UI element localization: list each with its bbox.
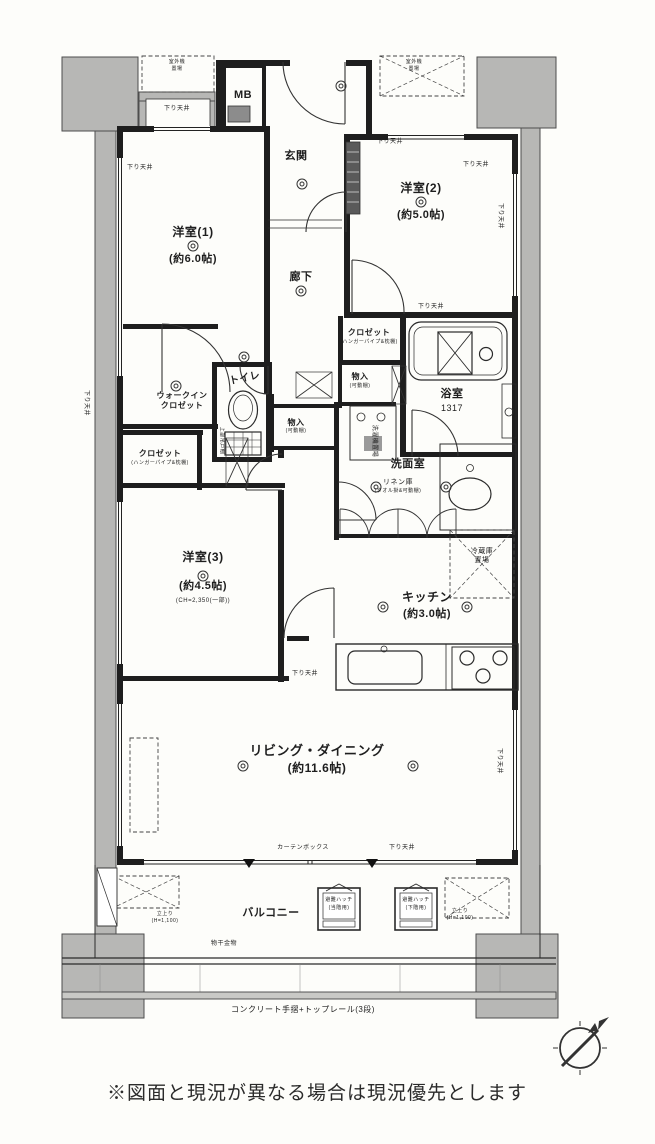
linen-closet-sub: (タオル掛&可動棚) — [375, 489, 422, 494]
outdoor-unit-left-line1: 室外機 — [169, 60, 186, 65]
dropped-ceiling-4: 下り天井 — [463, 162, 489, 168]
room-kitchen-name: キッチン — [402, 591, 452, 603]
compass-icon — [553, 1017, 609, 1075]
linen-closet: リネン庫 — [383, 479, 413, 486]
laundry-hardware: 物干金物 — [211, 941, 237, 947]
dropped-ceiling-3: 下り天井 — [377, 139, 403, 145]
room-yoshitsu1-name: 洋室(1) — [172, 226, 213, 238]
room-yoshitsu1-size: (約6.0帖) — [169, 254, 217, 265]
fridge-space-line2: 置場 — [475, 557, 490, 564]
room-rouka: 廊下 — [290, 272, 313, 283]
storage-b-sub: (可動棚) — [286, 429, 307, 434]
storage-a-sub: (可動棚) — [350, 384, 371, 389]
entrance-step — [268, 220, 342, 228]
hatch-right-line1: 避難ハッチ — [402, 898, 430, 903]
washer-space: 洗濯機置場 — [371, 425, 377, 458]
walkin-closet-line1: ウォークイン — [157, 392, 208, 400]
room-yoshitsu3-ceiling: (CH=2,350(一部)) — [176, 598, 230, 604]
closet-center: クロゼット — [348, 329, 391, 337]
outdoor-unit-right-line1: 室外機 — [406, 60, 423, 65]
bath-size: 1317 — [441, 404, 463, 413]
storage-b: 物入 — [288, 419, 305, 427]
room-genkan: 玄関 — [285, 151, 308, 162]
front-door — [283, 62, 345, 124]
toilet-fixture — [225, 391, 261, 455]
room-yoshitsu3-size: (約4.5帖) — [179, 581, 227, 592]
dropped-ceiling-9: 下り天井 — [497, 203, 503, 229]
dropped-ceiling-8: 下り天井 — [83, 390, 89, 416]
room-senmen: 洗面室 — [391, 459, 426, 470]
closet-left: クロゼット — [139, 450, 182, 458]
parapet-right-line2: (H=1,100) — [447, 916, 474, 921]
room-living-dining-name: リビング・ダイニング — [249, 744, 384, 757]
parapet-left-line2: (H=1,100) — [152, 919, 179, 924]
ld-furniture-box — [130, 738, 158, 832]
meter-box: MB — [234, 90, 252, 101]
kitchen-counter — [336, 644, 518, 690]
storage-a: 物入 — [352, 373, 369, 381]
outdoor-unit-left-line2: 置場 — [171, 67, 182, 72]
dropped-ceiling-2: 下り天井 — [164, 106, 190, 112]
porch-alcove — [146, 99, 210, 127]
room-living-dining-size: (約11.6帖) — [288, 762, 347, 774]
meter-unit — [228, 106, 250, 122]
handrail-note: コンクリート手摺+トップレール(3段) — [231, 1006, 375, 1014]
closet-center-sub: (ハンガーパイプ&枕棚) — [340, 340, 398, 345]
upper-cabinet: 上部吊戸棚 — [219, 427, 224, 455]
shoe-cabinet — [346, 142, 360, 214]
dropped-ceiling-6: 下り天井 — [292, 671, 318, 677]
walkin-closet-line2: クロゼット — [161, 402, 204, 410]
dropped-ceiling-5: 下り天井 — [418, 304, 444, 310]
room-yoshitsu2-size: (約5.0帖) — [397, 210, 445, 221]
curtain-box: カーテンボックス — [277, 845, 329, 851]
floorplan-drawing — [0, 0, 655, 1144]
outdoor-unit-right-line2: 置場 — [408, 67, 419, 72]
dropped-ceiling-1: 下り天井 — [127, 165, 153, 171]
floorplan-page: ※図面と現況が異なる場合は現況優先とします 洋室(1)(約6.0帖)洋室(2)(… — [0, 0, 655, 1144]
fridge-space-line1: 冷蔵庫 — [471, 548, 494, 555]
room-yoshitsu3-name: 洋室(3) — [182, 551, 223, 563]
room-kitchen-size: (約3.0帖) — [403, 609, 451, 620]
disclaimer-caption: ※図面と現況が異なる場合は現況優先とします — [107, 1078, 527, 1105]
dropped-ceiling-10: 下り天井 — [496, 748, 502, 774]
parapet-right-line1: 立上り — [452, 909, 469, 914]
hatch-right-line2: (下階用) — [406, 906, 427, 911]
hatch-left-line1: 避難ハッチ — [325, 898, 353, 903]
room-bath: 浴室 — [441, 389, 464, 400]
room-yoshitsu2-name: 洋室(2) — [400, 182, 441, 194]
dropped-ceiling-7: 下り天井 — [389, 845, 415, 851]
room-balcony: バルコニー — [242, 908, 299, 919]
hatch-left-line2: (当階用) — [329, 906, 350, 911]
closet-left-sub: (ハンガーパイプ&枕棚) — [131, 461, 189, 466]
parapet-left-line1: 立上り — [157, 912, 174, 917]
